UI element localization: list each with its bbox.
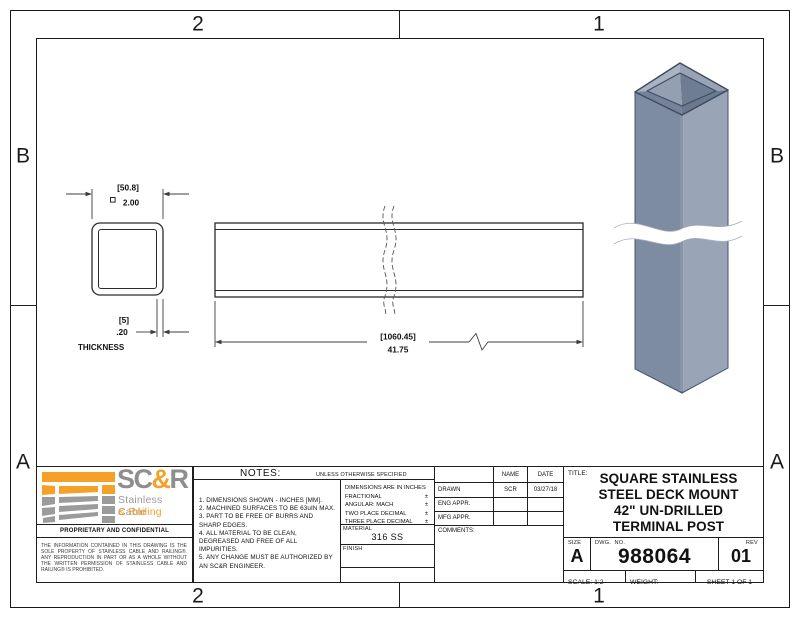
tol-line-3: ANGULAR: MACH (345, 501, 393, 510)
sheet-cell: SHEET 1 OF 1 (695, 570, 764, 583)
drawn-date: 03/27/18 (528, 487, 563, 493)
comments-label: COMMENTS: (438, 528, 475, 534)
size-value: A (564, 546, 590, 567)
note-item-5: 5. ANY CHANGE MUST BE AUTHORIZED BY AN S… (199, 554, 337, 570)
note-item-4: 4. ALL MATERIAL TO BE CLEAN, DEGREASED A… (199, 530, 337, 555)
eng-appr-label: ENG APPR. (438, 501, 470, 507)
front-width-metric: [50.8] (117, 183, 139, 193)
notes-list: 1. DIMENSIONS SHOWN - INCHES [MM]. 2. MA… (193, 479, 341, 583)
sheet-value: SHEET 1 OF 1 (707, 577, 752, 588)
length-metric: [1060.45] (380, 332, 416, 342)
brand-subtitle-2: & Railing (118, 506, 162, 518)
dwg-number: 988064 (591, 545, 718, 569)
thickness-metric: [5] (119, 315, 129, 325)
drawing-sheet: 2 1 2 1 B A B A [50.8] 2.00 (0, 0, 800, 618)
confidential-bar: PROPRIETARY AND CONFIDENTIAL (37, 524, 192, 538)
material-value: 316 SS (341, 532, 434, 542)
rev-label: REV (746, 540, 758, 546)
tol-line-1: DIMENSIONS ARE IN INCHES (345, 484, 426, 493)
side-view: [1060.45] 41.75 (215, 206, 583, 355)
date-header: DATE (528, 472, 563, 478)
size-label: SIZE (568, 540, 581, 546)
thickness-inch: .20 (116, 327, 128, 337)
finish-empty-cell (340, 567, 435, 583)
notes-title: NOTES: (240, 468, 281, 479)
finish-cell: FINISH (340, 544, 435, 568)
note-item-1: 1. DIMENSIONS SHOWN - INCHES [MM]. (199, 497, 337, 505)
length-inch: 41.75 (388, 345, 409, 355)
title-line-3: 42" UN-DRILLED (574, 503, 763, 519)
scale-cell: SCALE: 1:2 (563, 570, 626, 583)
title-line-2: STEEL DECK MOUNT (574, 487, 763, 503)
square-symbol-icon (111, 198, 116, 203)
finish-label: FINISH (343, 546, 363, 552)
front-width-inch: 2.00 (123, 198, 140, 208)
brand-amp: & (152, 464, 170, 494)
title-line-4: TERMINAL POST (574, 519, 763, 535)
legal-text: THE INFORMATION CONTAINED IN THIS DRAWIN… (41, 543, 187, 573)
approval-table: NAME DATE DRAWN SCR 03/27/18 ENG APPR. M… (434, 466, 564, 583)
drawn-label: DRAWN (438, 487, 460, 493)
title-label: TITLE: (568, 470, 588, 477)
material-label: MATERIAL (343, 526, 372, 532)
name-header: NAME (494, 472, 527, 478)
brand-wordmark: SC&R (117, 466, 188, 493)
brand-r: R (170, 464, 188, 494)
thickness-label: THICKNESS (78, 343, 125, 352)
brand-sc: SC (117, 464, 152, 494)
iso-view (614, 63, 742, 393)
drawn-name: SCR (494, 487, 527, 493)
dwg-label: DWG. NO. (595, 540, 625, 546)
notes-header-note: UNLESS OTHERWISE SPECIFIED (316, 472, 407, 478)
tol-line-2: FRACTIONAL (345, 493, 382, 502)
confidential-text: PROPRIETARY AND CONFIDENTIAL (60, 528, 169, 534)
title-cell: TITLE: SQUARE STAINLESS STEEL DECK MOUNT… (563, 466, 764, 538)
tol-line-4: TWO PLACE DECIMAL (345, 510, 407, 519)
title-line-1: SQUARE STAINLESS (574, 471, 763, 487)
weight-value: WEIGHT: (626, 577, 658, 588)
notes-header: NOTES: UNLESS OTHERWISE SPECIFIED (193, 466, 435, 480)
front-view: [50.8] 2.00 [5] .20 THICKNESS (66, 183, 189, 353)
dwg-cell: DWG. NO. 988064 (590, 537, 719, 571)
logo-cell: SC&R Stainless Cable & Railing PROPRIETA… (36, 466, 193, 583)
material-cell: MATERIAL 316 SS (340, 524, 435, 545)
rev-cell: REV 01 (718, 537, 764, 571)
size-cell: SIZE A (563, 537, 591, 571)
scale-value: SCALE: 1:2 (564, 577, 604, 588)
railing-logo-icon (41, 471, 117, 523)
weight-cell: WEIGHT: (625, 570, 696, 583)
note-item-3: 3. PART TO BE FREE OF BURRS AND SHARP ED… (199, 513, 337, 529)
tol-pm-3: ± (425, 510, 428, 519)
tolerance-block: DIMENSIONS ARE IN INCHES FRACTIONAL± ANG… (340, 479, 435, 525)
mfg-appr-label: MFG APPR. (438, 515, 471, 521)
tol-pm-1: ± (425, 493, 428, 502)
tol-pm-2: ± (425, 501, 428, 510)
rev-value: 01 (719, 546, 763, 567)
note-item-2: 2. MACHINED SURFACES TO BE 63uIN MAX. (199, 505, 337, 513)
